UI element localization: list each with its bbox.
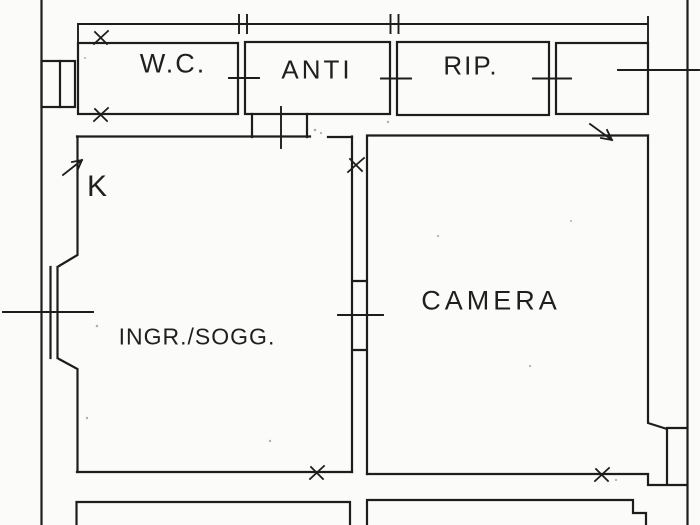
left-shaft — [42, 61, 76, 107]
room-label-kitchen: K — [87, 170, 107, 204]
room-bottom-walls — [77, 472, 648, 474]
floor-plan: W.C. ANTI RIP. K INGR./SOGG. CAMERA — [0, 0, 700, 525]
survey-marks — [63, 31, 612, 481]
scan-specks — [84, 57, 617, 481]
central-wall — [338, 137, 383, 475]
right-window-recess — [648, 136, 686, 486]
bottom-room-outlines — [77, 500, 647, 525]
room-label-bedroom: CAMERA — [421, 286, 561, 317]
room-label-rip: RIP. — [443, 51, 498, 82]
outer-walls — [42, 0, 688, 525]
room-label-entry-living: INGR./SOGG. — [119, 324, 276, 351]
dimension-line — [78, 15, 648, 43]
room-label-wc: W.C. — [140, 49, 207, 80]
left-window-recess — [3, 137, 93, 473]
interior-top-walls — [77, 136, 648, 138]
room-label-anti: ANTI — [281, 55, 352, 86]
